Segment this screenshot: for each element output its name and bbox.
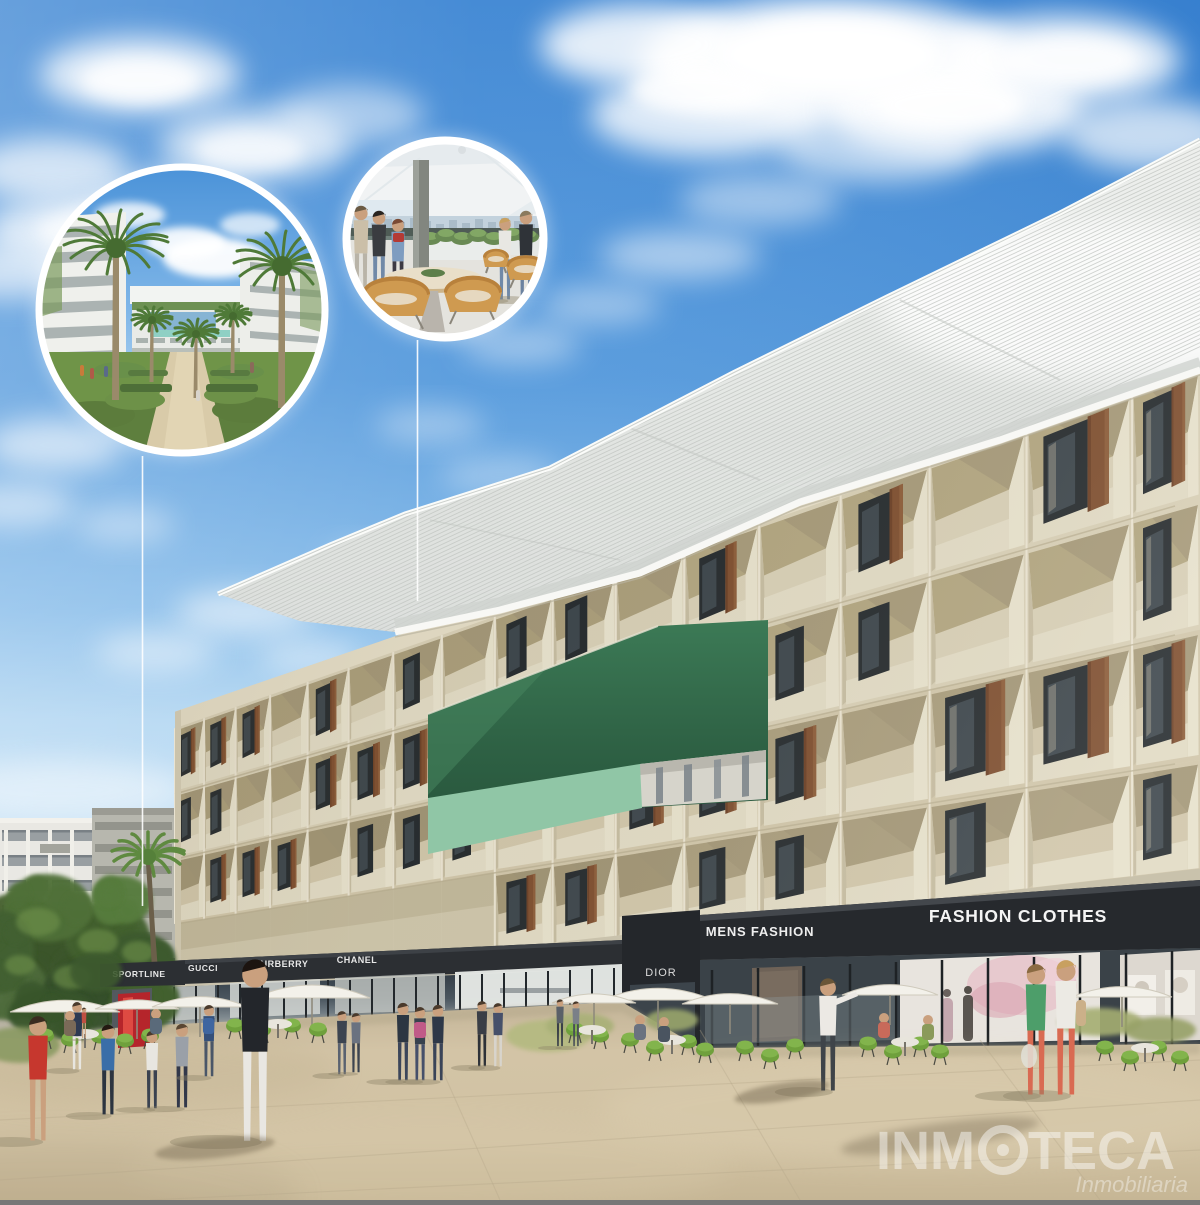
svg-text:DIOR: DIOR	[645, 967, 677, 979]
svg-text:CHANEL: CHANEL	[337, 955, 378, 965]
svg-text:Inmobiliaria: Inmobiliaria	[1076, 1172, 1189, 1197]
svg-text:MENS FASHION: MENS FASHION	[706, 924, 815, 939]
svg-text:FASHION CLOTHES: FASHION CLOTHES	[929, 906, 1107, 926]
svg-text:INM: INM	[876, 1121, 975, 1181]
svg-text:GUCCI: GUCCI	[188, 963, 218, 973]
